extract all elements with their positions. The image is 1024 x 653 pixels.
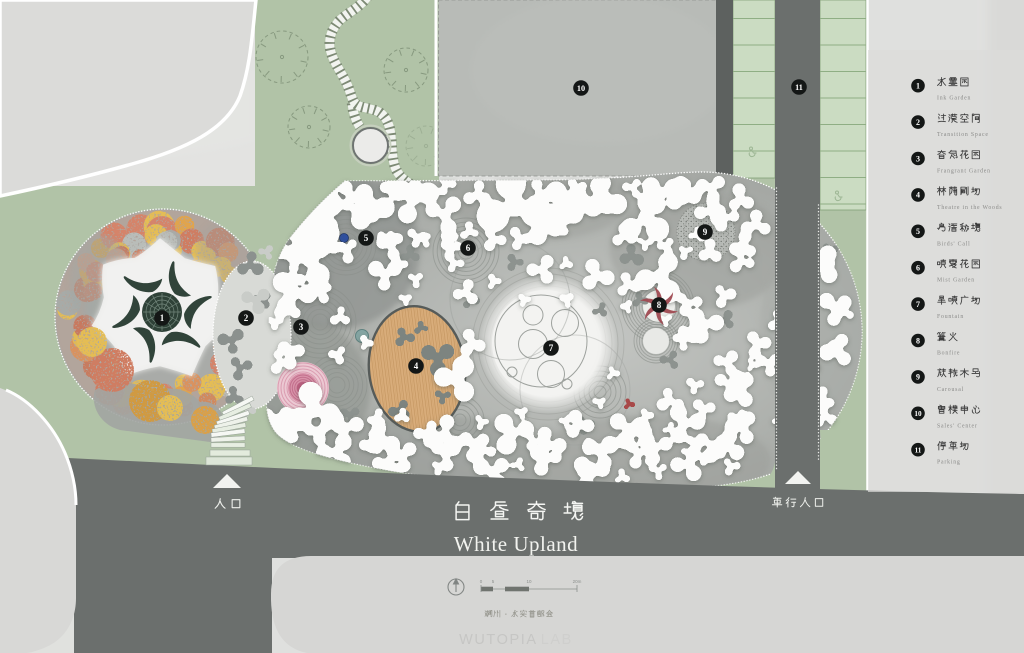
- svg-text:7: 7: [549, 343, 554, 353]
- svg-text:7: 7: [916, 300, 920, 309]
- svg-text:Parking: Parking: [937, 460, 961, 466]
- svg-text:9: 9: [916, 373, 920, 382]
- svg-text:Mist Garden: Mist Garden: [937, 278, 975, 284]
- svg-text:Sales' Center: Sales' Center: [937, 423, 978, 429]
- svg-text:WUTOPIALAB: WUTOPIALAB: [459, 632, 573, 648]
- svg-text:Fountain: Fountain: [937, 314, 964, 320]
- svg-text:20m: 20m: [573, 579, 582, 584]
- svg-text:10: 10: [577, 84, 585, 93]
- svg-text:Bonfire: Bonfire: [937, 350, 960, 357]
- svg-text:11: 11: [795, 83, 803, 92]
- svg-text:Frangrant Garden: Frangrant Garden: [937, 169, 991, 175]
- svg-text:1: 1: [160, 313, 165, 323]
- svg-text:9: 9: [703, 227, 708, 237]
- svg-text:11: 11: [915, 447, 922, 455]
- svg-text:Ink Garden: Ink Garden: [937, 96, 971, 102]
- svg-text:1: 1: [916, 82, 920, 91]
- svg-text:Transition Space: Transition Space: [937, 132, 989, 138]
- svg-text:Carousal: Carousal: [937, 387, 964, 393]
- svg-text:8: 8: [916, 336, 920, 345]
- svg-text:10: 10: [914, 410, 922, 418]
- svg-text:Theatre in the Woods: Theatre in the Woods: [937, 205, 1003, 211]
- svg-text:2: 2: [916, 118, 920, 127]
- svg-text:8: 8: [657, 300, 662, 310]
- svg-text:5: 5: [916, 227, 920, 236]
- svg-text:3: 3: [299, 322, 304, 332]
- svg-text:3: 3: [916, 154, 920, 163]
- svg-text:6: 6: [916, 264, 920, 273]
- svg-text:5: 5: [364, 233, 369, 243]
- svg-text:6: 6: [466, 243, 471, 253]
- svg-text:10: 10: [526, 579, 532, 584]
- svg-text:4: 4: [916, 191, 920, 200]
- svg-text:Birds' Call: Birds' Call: [937, 241, 971, 247]
- svg-text:2: 2: [244, 313, 249, 323]
- svg-text:White Upland: White Upland: [454, 532, 578, 556]
- svg-text:4: 4: [414, 361, 419, 371]
